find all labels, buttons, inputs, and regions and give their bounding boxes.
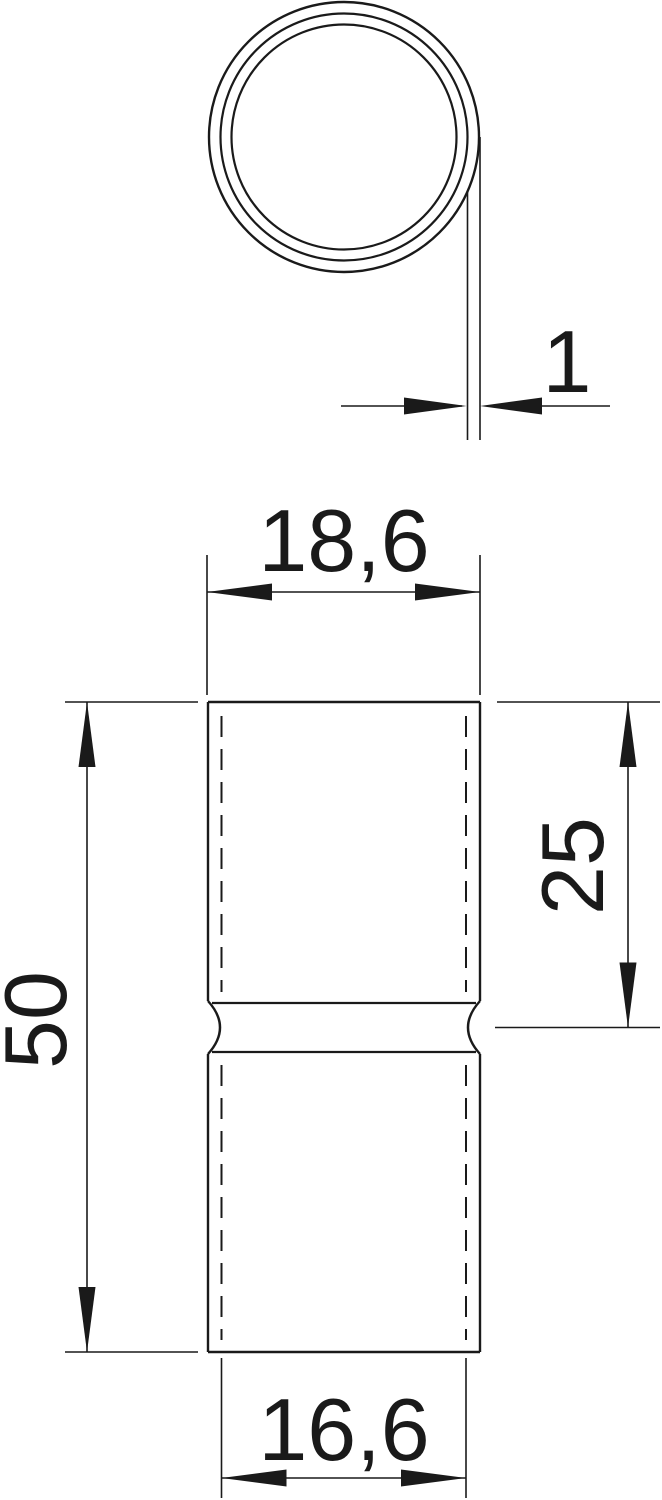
arrowhead-down-icon xyxy=(620,963,637,1028)
arrowhead-down-icon xyxy=(79,1287,96,1352)
technical-drawing-canvas: 1 18,6 xyxy=(0,0,662,1500)
arrowhead-right-icon xyxy=(404,398,467,415)
overall-length-dimension: 50 xyxy=(0,702,198,1352)
arrowhead-up-icon xyxy=(620,702,637,767)
waist-right-curve xyxy=(468,1001,480,1054)
wall-thickness-dimension: 1 xyxy=(341,137,610,440)
socket-depth-label: 25 xyxy=(523,817,622,915)
arrowhead-up-icon xyxy=(79,702,96,767)
arrowhead-left-icon xyxy=(480,398,542,415)
top-view xyxy=(209,2,479,272)
overall-length-label: 50 xyxy=(0,971,85,1069)
hidden-lines xyxy=(222,716,467,1340)
front-view xyxy=(208,702,480,1352)
socket-depth-dimension: 25 xyxy=(495,702,660,1028)
inner-diameter-label: 16,6 xyxy=(258,1380,429,1479)
outer-diameter-label: 18,6 xyxy=(258,491,429,590)
inner-diameter-dimension: 16,6 xyxy=(222,1358,467,1498)
sleeve-technical-drawing: 1 18,6 xyxy=(0,0,662,1500)
inner-circle xyxy=(232,25,457,250)
wall-thickness-label: 1 xyxy=(543,312,592,411)
outer-circle xyxy=(209,2,479,272)
waist-left-curve xyxy=(208,1001,220,1054)
middle-circle xyxy=(221,14,468,261)
outer-diameter-dimension: 18,6 xyxy=(207,491,480,695)
